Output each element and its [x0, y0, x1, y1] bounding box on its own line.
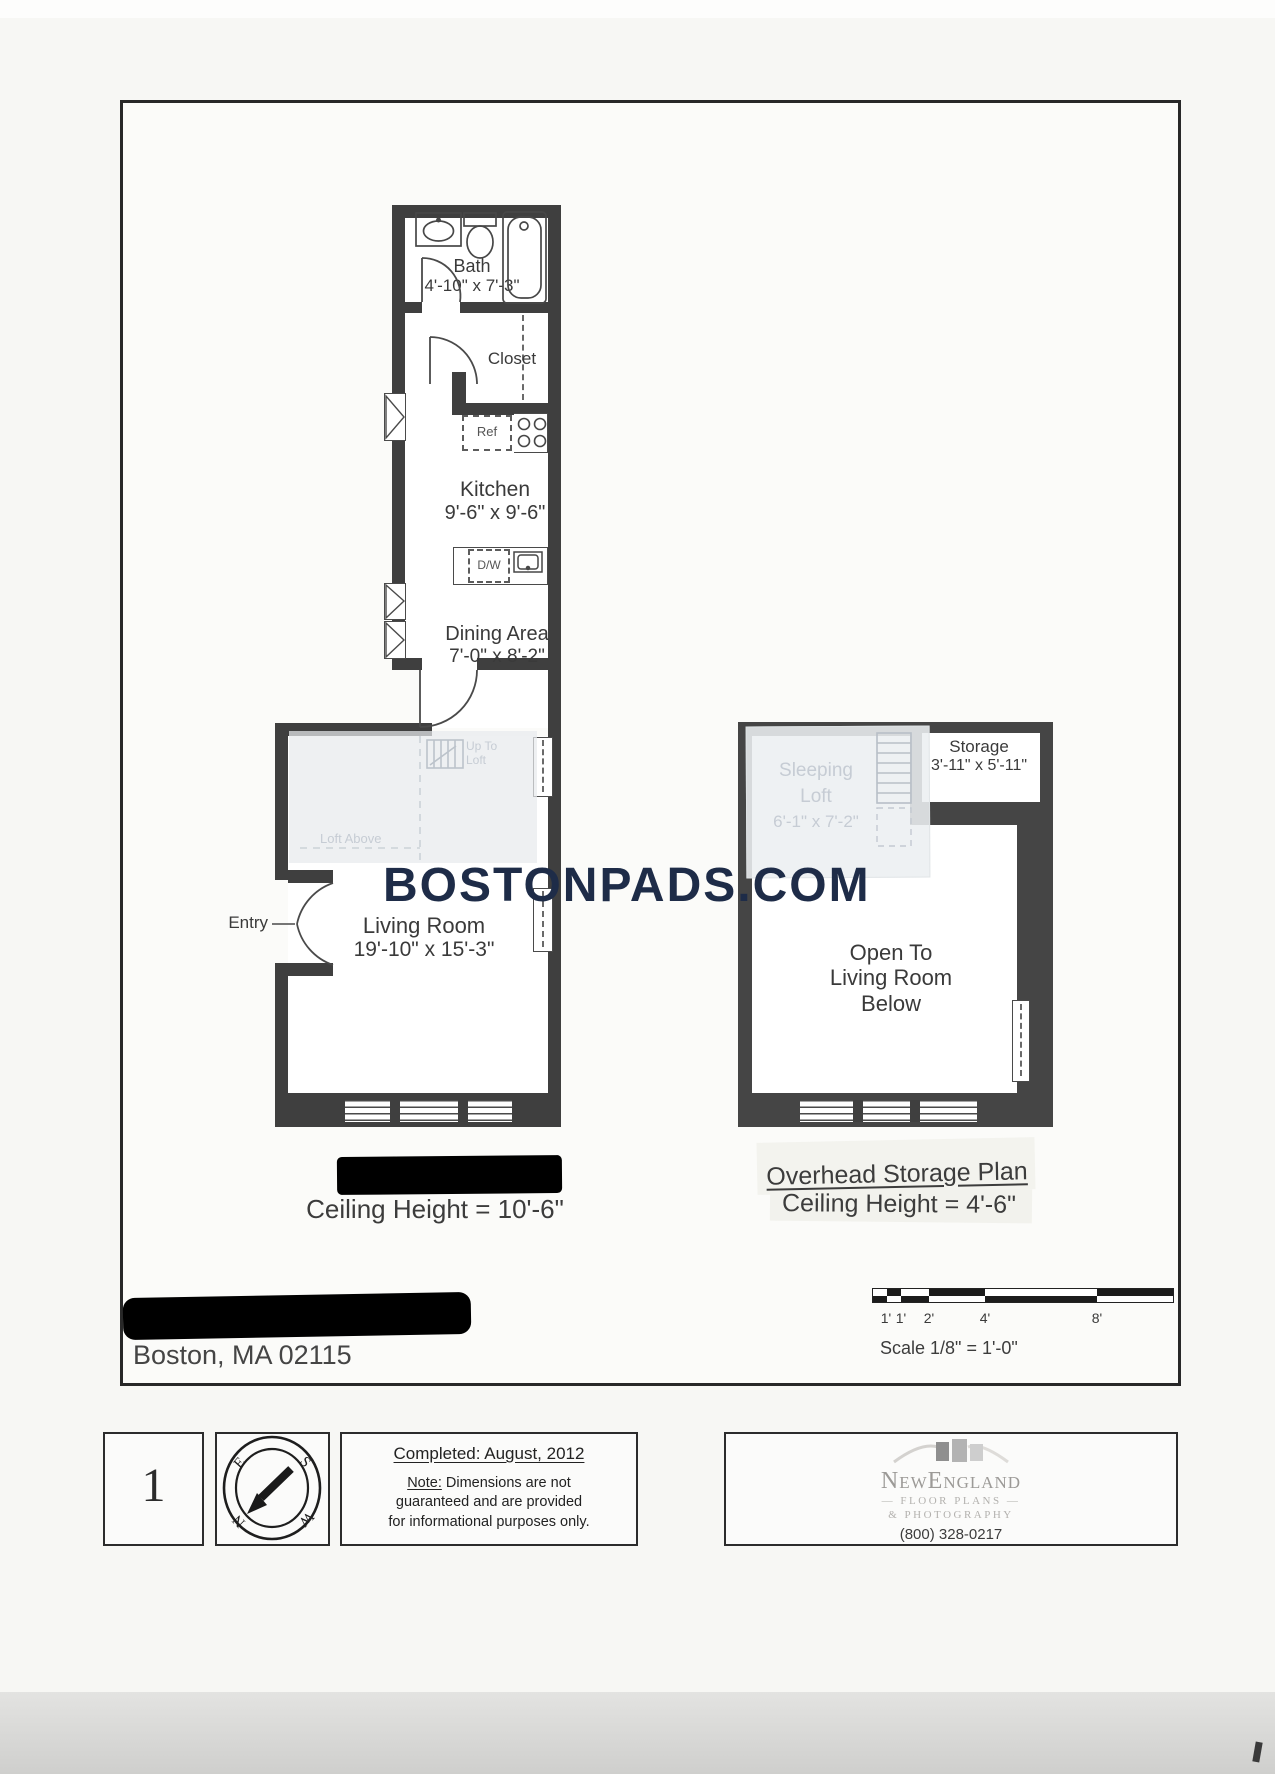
stairs-icon: [427, 740, 463, 768]
watermark: BOSTONPADS.COM: [383, 858, 871, 913]
faint-loft-above: Loft Above: [320, 832, 381, 847]
loft-stairs-icon: [877, 733, 911, 803]
faint-sleeping-line1: Sleeping: [773, 760, 859, 782]
faint-up-to-loft: Up To Loft: [466, 740, 497, 768]
faint-sleeping-loft: Sleeping Loft 6'-1" x 7'-2": [773, 760, 859, 831]
faint-up-to-loft-line1: Up To: [466, 740, 497, 754]
faint-sleeping-line2: Loft: [773, 786, 859, 808]
redaction-bar: [337, 1155, 562, 1195]
loft-hatch-dashed: [877, 808, 911, 846]
faint-up-to-loft-line2: Loft: [466, 754, 497, 768]
scanned-floorplan-page: { "colors":{"wall":"#3f3f3f","watermark"…: [0, 0, 1275, 1774]
redaction-bar: [123, 1292, 472, 1340]
faint-sleeping-dims: 6'-1" x 7'-2": [773, 812, 859, 832]
